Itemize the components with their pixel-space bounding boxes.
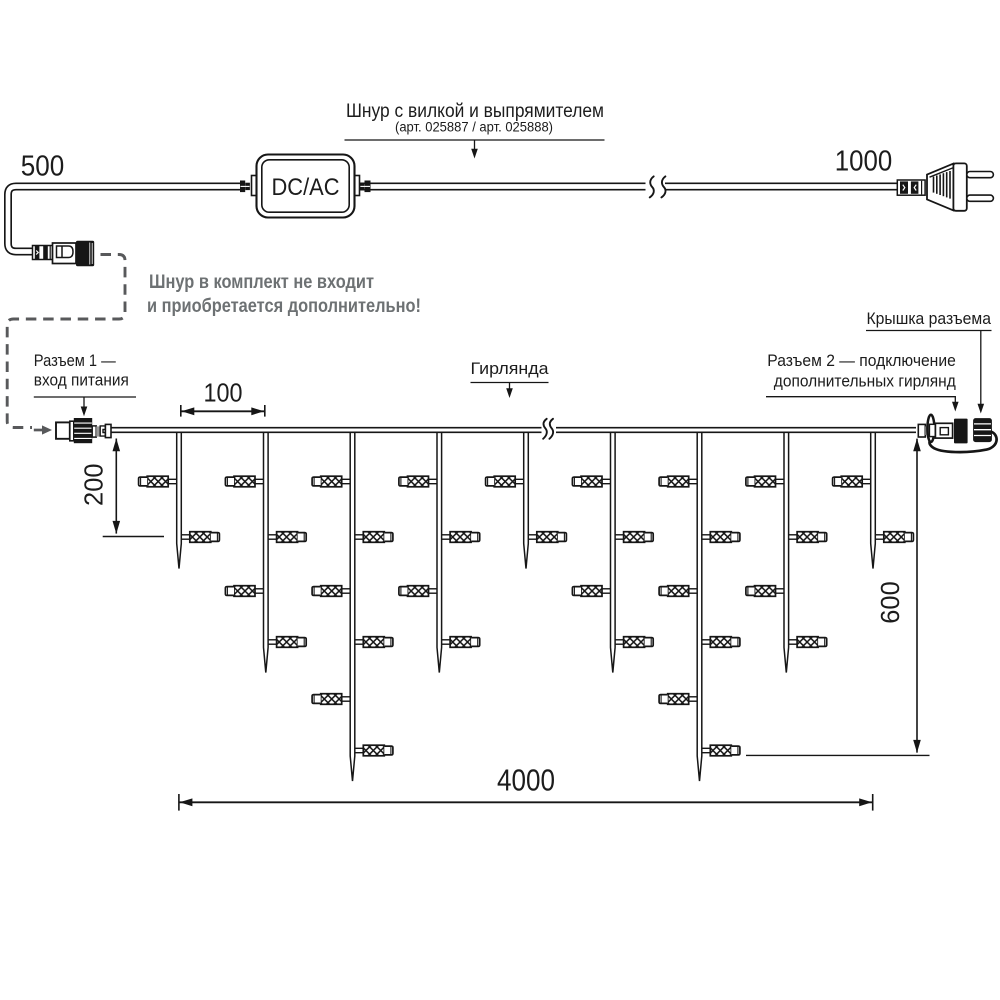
svg-text:и приобретается дополнительно!: и приобретается дополнительно!	[147, 296, 421, 317]
svg-text:Разъем 2 — подключение: Разъем 2 — подключение	[767, 351, 956, 370]
svg-text:вход питания: вход питания	[34, 371, 129, 390]
svg-text:Крышка разъема: Крышка разъема	[867, 309, 992, 328]
svg-text:4000: 4000	[497, 763, 555, 798]
svg-text:Разъем 1 —: Разъем 1 —	[34, 351, 116, 370]
svg-text:Шнур в комплект не входит: Шнур в комплект не входит	[149, 272, 374, 293]
svg-text:дополнительных гирлянд: дополнительных гирлянд	[774, 372, 956, 391]
svg-text:500: 500	[21, 151, 65, 183]
svg-text:600: 600	[877, 581, 905, 624]
svg-text:(арт. 025887 / арт. 025888): (арт. 025887 / арт. 025888)	[395, 120, 553, 135]
svg-text:200: 200	[80, 463, 108, 506]
svg-text:100: 100	[204, 378, 243, 408]
svg-text:Гирлянда: Гирлянда	[471, 359, 550, 378]
svg-text:1000: 1000	[835, 146, 893, 178]
svg-text:DC/AC: DC/AC	[272, 174, 340, 201]
